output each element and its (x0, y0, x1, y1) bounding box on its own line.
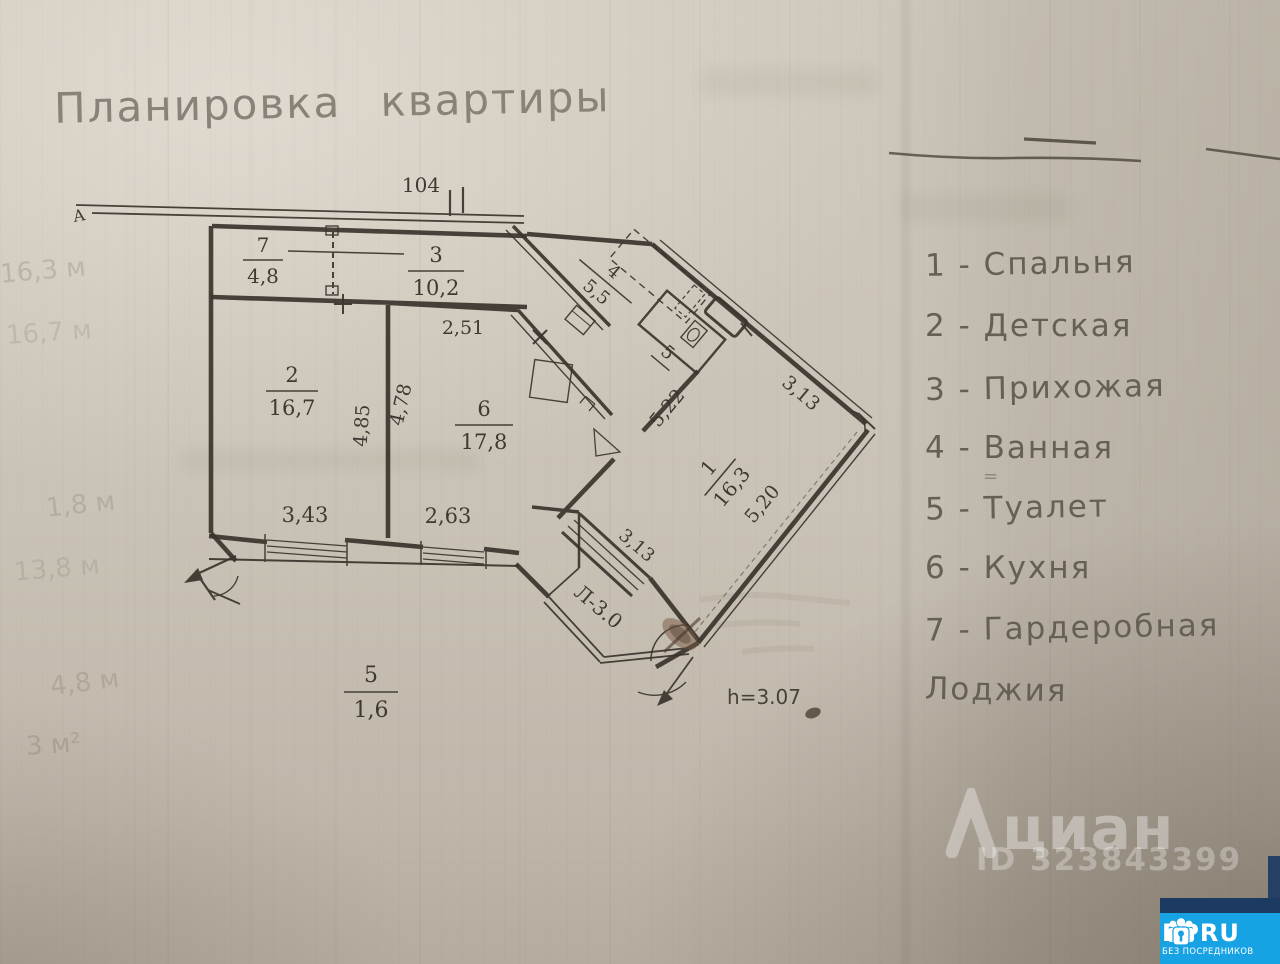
ceiling-height-label: h=3.07 (727, 685, 801, 709)
dim-room2-window: 3,43 (282, 503, 329, 527)
pencil-strokes-top-right (889, 139, 1280, 161)
unit-number-label: 104 (402, 173, 440, 197)
svg-text:3: 3 (429, 243, 442, 267)
room-label-3: 3 10,2 (408, 243, 464, 300)
bpru-badge: BPRU БЕЗ ПОСРЕДНИКОВ (1160, 913, 1280, 964)
dim-kitchen-side: 4,78 (386, 382, 417, 428)
corner-mark-label: А (71, 205, 86, 226)
arrow-mark-bottom-left (184, 556, 240, 604)
legend-item-5: 5 - Туалет (925, 488, 1109, 527)
wardrobe-partition (288, 226, 404, 295)
svg-text:1,6: 1,6 (354, 698, 389, 723)
toilet-icon (681, 320, 707, 347)
dim-bedroom-upper-right: 3,13 (778, 371, 825, 415)
room-label-7: 7 4,8 (243, 233, 283, 288)
legend-item-4: 4 - Ванная (925, 430, 1114, 466)
dim-bedroom-lower-right: 5,20 (740, 481, 784, 528)
bpru-people-icon (1160, 913, 1202, 955)
room-label-1: 1 16,3 (684, 441, 756, 512)
room-label-2: 2 16,7 (266, 363, 318, 420)
dim-kitchen-top: 2,51 (442, 317, 484, 339)
wall-niche (704, 296, 747, 337)
stray-pencil-mark: = (983, 466, 998, 487)
outer-walls (211, 226, 875, 667)
legend-item-6: 6 - Кухня (925, 550, 1091, 586)
room-note-5: 5 1,6 (344, 663, 398, 723)
room-label-5: 5 (651, 338, 684, 371)
legend-item-3: 3 - Прихожая (925, 368, 1166, 408)
arrow-mark-loggia (638, 657, 693, 706)
shaft-bracket-mark (580, 396, 595, 411)
svg-text:5: 5 (656, 341, 678, 364)
svg-text:4: 4 (602, 260, 624, 283)
loggia-label: Л-3.0 (570, 580, 628, 634)
dim-room2-side: 4,85 (350, 404, 375, 448)
svg-text:6: 6 (477, 397, 490, 421)
corridor-walls (76, 187, 524, 223)
ghost-note: 16,7 м (5, 315, 93, 351)
badge-navy-sliver (1268, 856, 1280, 898)
svg-text:10,2: 10,2 (413, 276, 460, 300)
svg-text:Л-3.0: Л-3.0 (570, 580, 628, 634)
svg-text:1: 1 (695, 455, 722, 480)
svg-text:5: 5 (364, 663, 378, 688)
svg-text:7: 7 (257, 233, 270, 257)
legend-item-loggia: Лоджия (925, 671, 1068, 709)
legend-item-1: 1 - Спальня (925, 244, 1136, 284)
badge-navy-strip (1160, 898, 1280, 913)
ink-blot (804, 706, 822, 721)
dim-kitchen-window: 2,63 (425, 504, 472, 528)
room-label-6: 6 17,8 (455, 397, 513, 454)
ghost-note: 3 м² (25, 728, 82, 762)
svg-text:17,8: 17,8 (461, 430, 508, 454)
svg-text:16,7: 16,7 (269, 396, 316, 420)
room-label-4: 4 5,5 (563, 242, 646, 322)
watermark-listing-id: ID 323843399 (976, 842, 1242, 878)
svg-text:2: 2 (285, 363, 298, 387)
window-band-bottom (209, 534, 519, 569)
svg-text:4,8: 4,8 (247, 264, 279, 288)
sink-icon (565, 305, 595, 334)
dim-loggia-window: 3,13 (614, 525, 658, 567)
legend-item-7: 7 - Гардеробная (925, 607, 1220, 648)
legend-item-2: 2 - Детская (925, 308, 1132, 344)
